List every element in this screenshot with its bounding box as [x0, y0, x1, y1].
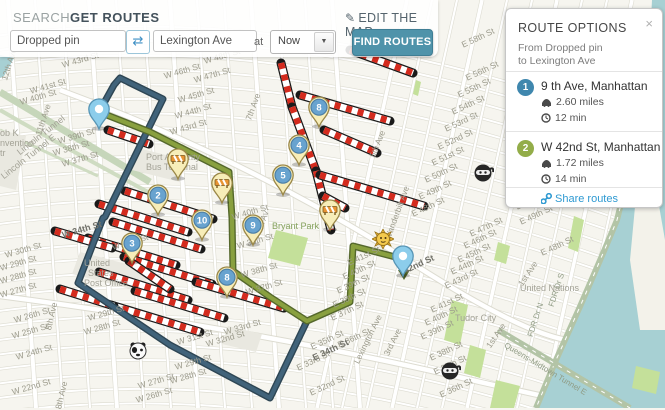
- divider: [506, 187, 662, 188]
- clock-icon: [541, 174, 551, 184]
- route-from-line: From Dropped pin: [518, 42, 603, 55]
- car-icon: [541, 98, 552, 107]
- route-2-distance: 1.72 miles: [541, 157, 604, 169]
- share-link-icon: [541, 193, 552, 204]
- divider: [506, 131, 662, 132]
- route-options-panel: ROUTE OPTIONS × From Dropped pin to Lexi…: [505, 8, 663, 208]
- swap-endpoints-button[interactable]: ⇄: [126, 30, 150, 54]
- share-routes-link[interactable]: Share routes: [541, 193, 618, 205]
- car-icon: [541, 159, 552, 168]
- route-2-time: 14 min: [541, 173, 587, 185]
- from-input[interactable]: [10, 30, 126, 52]
- find-routes-button[interactable]: FIND ROUTES: [352, 29, 433, 56]
- route-to-line: to Lexington Ave: [518, 55, 603, 68]
- route-1-name: 9 th Ave, Manhattan: [541, 79, 648, 93]
- divider: [506, 71, 662, 72]
- route-1-badge: 1: [517, 79, 534, 96]
- route-1-distance: 2.60 miles: [541, 96, 604, 108]
- tab-get-routes[interactable]: GET ROUTES: [70, 10, 160, 25]
- route-2-badge: 2: [517, 140, 534, 157]
- time-select-value: Now: [278, 35, 300, 47]
- pencil-icon: ✎: [345, 11, 355, 25]
- route-2-name: W 42nd St, Manhattan: [541, 140, 660, 154]
- top-toolbar: SEARCH GET ROUTES ⇄ at Now ▼ ✎EDIT THE M…: [0, 0, 438, 57]
- to-input[interactable]: [153, 30, 257, 52]
- close-icon[interactable]: ×: [645, 16, 653, 31]
- panel-title: ROUTE OPTIONS: [518, 21, 627, 35]
- waze-live-map: W 43rd StW 41st StW 40th StW 39th StW 38…: [0, 0, 665, 408]
- route-endpoints-summary: From Dropped pin to Lexington Ave: [518, 42, 603, 68]
- time-select[interactable]: Now ▼: [270, 30, 336, 54]
- route-1-time: 12 min: [541, 112, 587, 124]
- at-label: at: [254, 36, 263, 48]
- chevron-down-icon[interactable]: ▼: [314, 32, 334, 52]
- tab-search[interactable]: SEARCH: [13, 10, 70, 25]
- clock-icon: [541, 113, 551, 123]
